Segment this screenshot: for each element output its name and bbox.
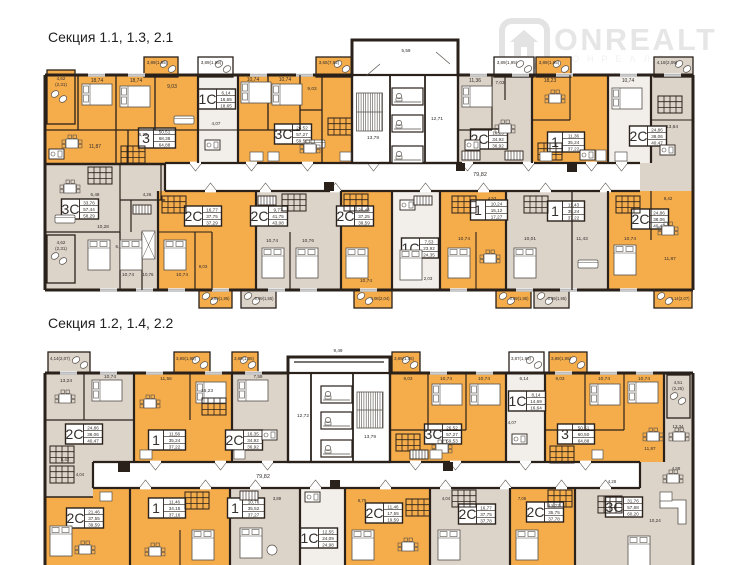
svg-text:34,15: 34,15: [169, 506, 181, 511]
svg-text:37,22: 37,22: [568, 216, 580, 221]
svg-text:37,55: 37,55: [88, 516, 100, 521]
svg-text:9,42: 9,42: [664, 196, 673, 201]
svg-text:9,03: 9,03: [307, 86, 317, 92]
svg-text:31,76: 31,76: [627, 498, 639, 503]
svg-text:9,49: 9,49: [334, 348, 343, 353]
svg-text:12,71: 12,71: [431, 116, 443, 122]
svg-text:8,14: 8,14: [532, 392, 541, 397]
svg-text:4,08(2,04): 4,08(2,04): [370, 296, 390, 301]
svg-text:7,08: 7,08: [518, 496, 527, 501]
svg-text:17,55: 17,55: [387, 511, 399, 516]
svg-text:Секция 1.2, 1.4, 2.2: Секция 1.2, 1.4, 2.2: [48, 315, 173, 331]
svg-text:37,16: 37,16: [169, 513, 181, 518]
svg-text:(2,31): (2,31): [55, 246, 67, 251]
svg-text:ONREALT: ONREALT: [554, 23, 717, 57]
svg-text:3,88: 3,88: [273, 496, 282, 501]
svg-text:11,36: 11,36: [568, 133, 580, 138]
svg-text:2С: 2С: [459, 506, 477, 522]
svg-text:10,74: 10,74: [176, 272, 188, 278]
svg-text:4,26: 4,26: [143, 192, 152, 197]
svg-text:18,23: 18,23: [544, 78, 557, 84]
svg-text:9,03: 9,03: [404, 376, 413, 381]
svg-text:1С: 1С: [199, 91, 217, 107]
svg-text:10,74: 10,74: [638, 376, 650, 382]
svg-text:13,64: 13,64: [666, 124, 678, 130]
svg-text:10,74: 10,74: [279, 77, 292, 83]
svg-text:9,03: 9,03: [167, 84, 177, 90]
svg-text:6,48: 6,48: [91, 192, 100, 197]
svg-text:24,09: 24,09: [322, 536, 334, 541]
svg-text:6,14: 6,14: [222, 90, 231, 95]
svg-text:2С: 2С: [251, 208, 269, 224]
svg-text:21,46: 21,46: [88, 509, 100, 514]
svg-text:5,59: 5,59: [402, 48, 411, 53]
svg-text:4,07: 4,07: [212, 121, 221, 126]
svg-text:14,69: 14,69: [530, 399, 542, 404]
svg-text:12,55: 12,55: [322, 529, 334, 534]
svg-text:64,88: 64,88: [578, 439, 590, 444]
svg-text:5,09(1,55): 5,09(1,55): [254, 296, 274, 301]
svg-text:5,22: 5,22: [139, 132, 148, 137]
svg-text:2С: 2С: [226, 432, 244, 448]
svg-text:58,29: 58,29: [83, 214, 95, 219]
svg-text:33,76: 33,76: [83, 200, 95, 205]
svg-text:4,14(2,07): 4,14(2,07): [50, 356, 71, 361]
svg-text:4,14(2,07): 4,14(2,07): [670, 296, 690, 301]
svg-text:16,77: 16,77: [206, 207, 218, 212]
svg-text:10,74: 10,74: [478, 376, 490, 382]
svg-text:9,03: 9,03: [199, 264, 208, 269]
svg-text:12,72: 12,72: [297, 413, 309, 419]
svg-text:37,25: 37,25: [358, 214, 370, 219]
svg-text:35,24: 35,24: [568, 140, 580, 145]
svg-text:1: 1: [152, 432, 160, 448]
svg-text:13,79: 13,79: [364, 434, 376, 440]
svg-text:37,75: 37,75: [206, 214, 218, 219]
svg-text:37,29: 37,29: [206, 221, 218, 226]
svg-text:(2,25): (2,25): [672, 386, 684, 391]
svg-text:2С: 2С: [527, 504, 545, 520]
svg-text:36,92: 36,92: [247, 445, 259, 450]
svg-text:10,76: 10,76: [143, 272, 155, 277]
svg-text:1: 1: [152, 500, 160, 516]
svg-text:10,74: 10,74: [122, 272, 134, 278]
svg-text:13,79: 13,79: [367, 135, 379, 141]
svg-text:11,56: 11,56: [169, 431, 181, 436]
svg-text:16,65: 16,65: [220, 97, 232, 102]
svg-text:13,34: 13,34: [673, 424, 685, 429]
svg-text:19,59: 19,59: [387, 518, 399, 523]
svg-text:79,82: 79,82: [473, 172, 487, 178]
svg-text:15,12: 15,12: [491, 208, 503, 213]
svg-text:16,77: 16,77: [480, 505, 492, 510]
svg-text:2С: 2С: [366, 505, 384, 521]
svg-text:11,46: 11,46: [169, 499, 181, 504]
svg-text:1: 1: [231, 500, 239, 516]
svg-text:3,89(1,95): 3,89(1,95): [234, 356, 255, 361]
svg-text:3,89(1,95): 3,89(1,95): [551, 356, 572, 361]
svg-text:1: 1: [551, 203, 559, 219]
svg-text:37,27: 37,27: [248, 513, 260, 518]
svg-text:39,59: 39,59: [358, 221, 370, 226]
svg-text:35,24: 35,24: [568, 209, 580, 214]
svg-text:3,89(1,95): 3,89(1,95): [176, 356, 197, 361]
svg-text:3,89(1,95): 3,89(1,95): [497, 60, 518, 65]
svg-text:16,64: 16,64: [530, 406, 542, 411]
svg-text:18,74: 18,74: [130, 78, 143, 84]
svg-text:64,88: 64,88: [159, 143, 171, 148]
svg-text:10,24: 10,24: [649, 518, 661, 523]
svg-text:10,74: 10,74: [266, 238, 278, 244]
svg-text:11,56: 11,56: [160, 376, 172, 382]
svg-text:3,89(1,95): 3,89(1,95): [509, 296, 529, 301]
svg-text:2С: 2С: [185, 208, 203, 224]
svg-text:16,23: 16,23: [201, 388, 213, 394]
svg-text:13,24: 13,24: [60, 378, 72, 384]
svg-text:3,65(7,92): 3,65(7,92): [319, 60, 340, 65]
svg-text:35,24: 35,24: [169, 438, 181, 443]
svg-text:11,87: 11,87: [644, 446, 656, 451]
svg-text:10,74: 10,74: [247, 77, 260, 83]
svg-text:1: 1: [474, 202, 482, 218]
svg-text:1С: 1С: [509, 393, 527, 409]
svg-text:18,65: 18,65: [220, 104, 232, 109]
svg-text:24,86: 24,86: [653, 210, 665, 215]
svg-text:24,86: 24,86: [87, 425, 99, 430]
svg-text:3С: 3С: [275, 126, 293, 142]
svg-text:3,89(1,95): 3,89(1,95): [147, 60, 168, 65]
svg-text:3С: 3С: [62, 201, 80, 217]
svg-text:38,06: 38,06: [87, 432, 99, 437]
svg-text:10,01: 10,01: [524, 236, 536, 242]
svg-text:11,87: 11,87: [89, 144, 101, 150]
svg-text:11,36: 11,36: [469, 78, 481, 84]
svg-text:2С: 2С: [66, 426, 84, 442]
svg-text:41,75: 41,75: [272, 214, 284, 219]
svg-text:34,92: 34,92: [247, 438, 259, 443]
svg-text:37,22: 37,22: [169, 445, 181, 450]
svg-text:3,89(1,95): 3,89(1,95): [210, 296, 230, 301]
svg-text:4,53: 4,53: [488, 196, 497, 201]
svg-text:37,75: 37,75: [480, 512, 492, 517]
svg-text:24,35: 24,35: [423, 253, 435, 258]
svg-text:6,75: 6,75: [358, 498, 367, 503]
svg-text:3С: 3С: [425, 426, 443, 442]
svg-text:10,76: 10,76: [302, 238, 314, 244]
svg-text:34,92: 34,92: [492, 137, 504, 142]
svg-text:4,07: 4,07: [508, 420, 517, 425]
svg-text:10,74: 10,74: [624, 236, 636, 242]
svg-text:3,89(1,95): 3,89(1,95): [547, 296, 567, 301]
svg-text:3,89(1,95): 3,89(1,95): [539, 60, 560, 65]
svg-text:37,22: 37,22: [568, 147, 580, 152]
svg-text:35,52: 35,52: [248, 506, 260, 511]
svg-text:4,18(2,09): 4,18(2,09): [657, 60, 678, 65]
svg-text:38,06: 38,06: [651, 134, 663, 139]
svg-text:10,28: 10,28: [97, 224, 109, 229]
svg-text:4,04: 4,04: [76, 472, 85, 477]
svg-text:68,38: 68,38: [159, 136, 171, 141]
svg-text:10,74: 10,74: [622, 78, 635, 84]
svg-text:3,89(1,95): 3,89(1,95): [394, 356, 415, 361]
svg-text:23,92: 23,92: [423, 246, 435, 251]
svg-text:10,74: 10,74: [598, 376, 610, 382]
svg-text:36,92: 36,92: [492, 144, 504, 149]
svg-text:38,06: 38,06: [653, 217, 665, 222]
svg-text:5,42: 5,42: [61, 457, 70, 462]
svg-text:35,75: 35,75: [548, 510, 560, 515]
svg-text:10,74: 10,74: [440, 376, 452, 382]
svg-text:10,74: 10,74: [104, 374, 116, 380]
svg-text:7,59: 7,59: [254, 374, 263, 379]
svg-text:57,27: 57,27: [446, 432, 458, 437]
svg-text:2С: 2С: [630, 128, 648, 144]
svg-text:4,62: 4,62: [57, 240, 66, 245]
svg-text:11,43: 11,43: [576, 236, 588, 242]
svg-text:24,98: 24,98: [322, 543, 334, 548]
svg-text:39,59: 39,59: [88, 523, 100, 528]
svg-text:4,28: 4,28: [608, 479, 617, 484]
svg-text:24,86: 24,86: [651, 127, 663, 132]
svg-text:43,08: 43,08: [272, 221, 284, 226]
svg-text:11,46: 11,46: [387, 504, 399, 509]
svg-text:4,62: 4,62: [57, 76, 66, 81]
svg-text:7,53: 7,53: [425, 239, 434, 244]
svg-text:37,78: 37,78: [548, 517, 560, 522]
svg-text:11,43: 11,43: [568, 202, 580, 207]
svg-text:(2,31): (2,31): [55, 82, 67, 87]
svg-text:37,78: 37,78: [480, 519, 492, 524]
svg-text:57,68: 57,68: [627, 505, 639, 510]
svg-text:18,74: 18,74: [91, 78, 104, 84]
svg-text:3: 3: [561, 426, 569, 442]
svg-text:3,87(1,93): 3,87(1,93): [511, 356, 532, 361]
svg-text:57,44: 57,44: [83, 207, 95, 212]
svg-text:1С: 1С: [301, 530, 319, 546]
svg-text:11,87: 11,87: [664, 256, 676, 262]
svg-text:10,74: 10,74: [458, 236, 470, 242]
svg-text:Секция 1.1, 1.3, 2.1: Секция 1.1, 1.3, 2.1: [48, 29, 173, 45]
svg-text:60,20: 60,20: [627, 512, 639, 517]
svg-text:4,51: 4,51: [674, 380, 683, 385]
svg-text:4,04: 4,04: [442, 496, 451, 501]
svg-text:6,14: 6,14: [520, 376, 529, 381]
svg-text:3,89(1,95): 3,89(1,95): [201, 60, 222, 65]
svg-text:2,03: 2,03: [424, 276, 433, 281]
svg-text:10,74: 10,74: [360, 278, 372, 284]
svg-text:79,82: 79,82: [256, 474, 270, 480]
svg-text:2С: 2С: [67, 510, 85, 526]
svg-text:40,47: 40,47: [87, 439, 99, 444]
svg-text:59,53: 59,53: [446, 439, 458, 444]
svg-text:10,24: 10,24: [491, 201, 503, 206]
svg-text:16,35: 16,35: [247, 431, 259, 436]
svg-text:7,03: 7,03: [496, 80, 505, 85]
svg-text:57,27: 57,27: [296, 132, 308, 137]
svg-text:2С: 2С: [337, 208, 355, 224]
svg-text:60,50: 60,50: [578, 432, 590, 437]
svg-text:1: 1: [551, 134, 559, 150]
svg-text:9,03: 9,03: [556, 376, 565, 381]
svg-text:17,27: 17,27: [491, 215, 503, 220]
